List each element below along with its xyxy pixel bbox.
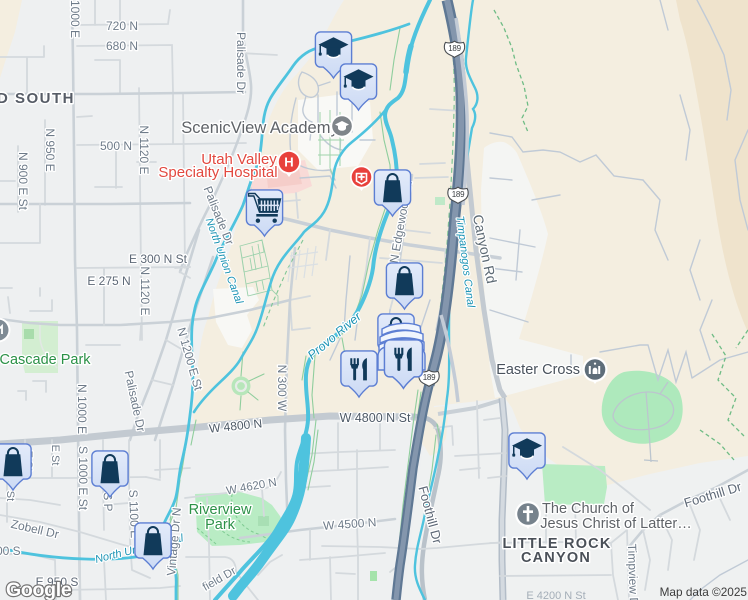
svg-text:Specialty Hospital: Specialty Hospital	[158, 164, 277, 181]
svg-text:N 1120 E: N 1120 E	[138, 266, 152, 315]
svg-text:Park: Park	[205, 517, 236, 533]
svg-text:Timpview Dr: Timpview Dr	[625, 544, 641, 600]
svg-text:E 275 N: E 275 N	[87, 274, 130, 288]
svg-text:00 S: 00 S	[0, 544, 21, 558]
svg-text:N 950 E: N 950 E	[43, 128, 57, 171]
svg-text:CANYON: CANYON	[521, 550, 591, 566]
svg-text:1000 E: 1000 E	[68, 0, 82, 38]
svg-text:N 1000 E: N 1000 E	[75, 384, 89, 434]
svg-text:Easter Cross: Easter Cross	[496, 362, 580, 378]
svg-text:720 N: 720 N	[106, 19, 138, 33]
svg-text:500 N: 500 N	[100, 139, 132, 153]
svg-text:Map data ©2025: Map data ©2025	[660, 585, 748, 599]
svg-text:Cascade Park: Cascade Park	[0, 352, 91, 368]
svg-text:ScenicView Academy: ScenicView Academy	[181, 119, 339, 137]
svg-text:189: 189	[448, 44, 461, 53]
svg-text:St: St	[4, 491, 16, 501]
svg-text:E 4200 N St: E 4200 N St	[526, 590, 585, 600]
svg-text:680 N: 680 N	[106, 39, 138, 53]
svg-text:Google: Google	[6, 579, 72, 600]
svg-text:189: 189	[452, 190, 465, 199]
svg-text:W 4800 N St: W 4800 N St	[340, 411, 411, 425]
svg-text:E St: E St	[49, 445, 61, 466]
svg-text:E 300 N St: E 300 N St	[129, 252, 188, 266]
svg-text:189: 189	[423, 373, 436, 382]
svg-text:N 1120 E: N 1120 E	[137, 125, 151, 174]
svg-text:Jesus Christ of Latter…: Jesus Christ of Latter…	[540, 516, 692, 532]
svg-text:S 1000 E St: S 1000 E St	[76, 446, 90, 511]
svg-text:N 300 W: N 300 W	[275, 365, 289, 412]
svg-text:The Church of: The Church of	[542, 501, 635, 517]
svg-text:N 900 E St: N 900 E St	[16, 152, 30, 211]
svg-text:Palisade Dr: Palisade Dr	[234, 32, 248, 94]
svg-text:D SOUTH: D SOUTH	[0, 90, 75, 107]
svg-text:H: H	[284, 155, 293, 170]
svg-text:Riverview: Riverview	[189, 502, 252, 518]
